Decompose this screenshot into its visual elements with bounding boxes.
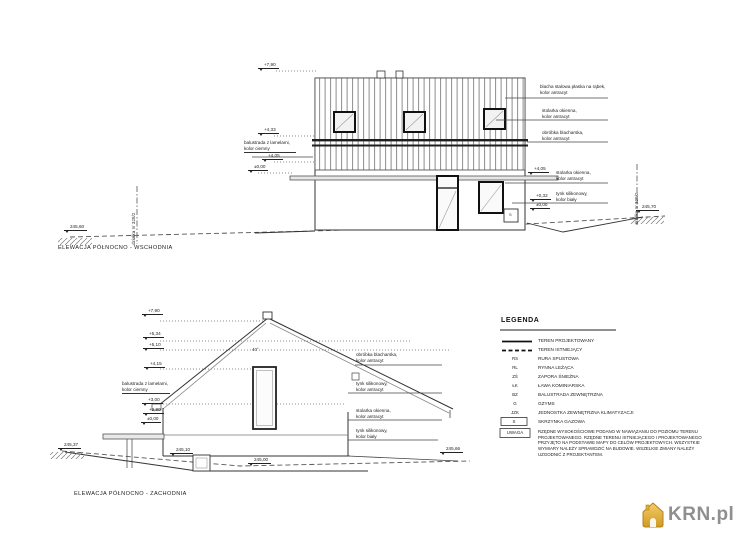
bot-ground-4: 245,66 <box>440 446 463 453</box>
legend-row-jzk: JEDNOSTKA ZEWNĘTRZNA KLIMATYZACJI <box>538 410 634 415</box>
legend-sym-rs: RS <box>502 356 528 361</box>
top-plot-label-left: działka nr 328/2 <box>131 213 136 245</box>
legend-sym-uwaga: UWAGA <box>500 430 530 435</box>
bottom-downpipe-box <box>193 455 210 471</box>
legend-sym-g: G <box>502 401 528 406</box>
top-anno-window: stolarka okienna, kolor antracyt <box>542 108 622 119</box>
bottom-elevation-caption: ELEWACJA PÓŁNOCNO - ZACHODNIA <box>74 491 187 497</box>
top-gas-box-letter: S <box>509 212 512 217</box>
bot-wall-label: balustrada z lamelami, kolor ciemny <box>122 381 170 394</box>
krn-logo-text: KRN.pl <box>668 504 734 526</box>
bot-level-1: +5,34 <box>143 331 164 338</box>
legend-sym-bz: BZ <box>502 392 528 397</box>
top-plot-label-right: działka nr 328/2 <box>634 193 639 225</box>
top-anno-roof-sheet: blacha stalowa płaska na rąbek, kolor an… <box>540 84 620 95</box>
bot-ground-2: 245,10 <box>170 447 193 454</box>
top-level-wall-right: +4,05 <box>528 166 549 173</box>
bot-level-ridge: +7,90 <box>142 308 163 315</box>
top-ground-left: 245,60 <box>64 224 87 231</box>
bot-level-3: +4,15 <box>144 361 165 368</box>
legend-sym-zs: ZŚ <box>502 374 528 379</box>
bot-anno-window: stolarka okienna, kolor antracyt <box>356 408 436 419</box>
legend-sym-jzk: JZK <box>502 410 528 415</box>
krn-house-icon <box>641 501 665 529</box>
legend-row-terrain-designed: TEREN PROJEKTOWANY <box>538 338 594 343</box>
top-door <box>437 176 458 230</box>
krn-watermark[interactable]: KRN.pl <box>641 501 734 529</box>
legend-row-lk: ŁAWA KOMINIARSKA <box>538 383 585 388</box>
top-slab <box>290 176 558 180</box>
bot-level-2: +5,10 <box>143 342 164 349</box>
bot-level-5: +2,80 <box>143 407 164 414</box>
bot-roof-pitch: 40° <box>252 347 259 352</box>
top-elevation-caption: ELEWACJA PÓŁNOCNO - WSCHODNIA <box>58 245 173 251</box>
top-level-plinth: +0,32 <box>530 193 551 200</box>
legend-row-g: GZYMS <box>538 401 555 406</box>
drawing-sheet: +7,90 +4,33 balustrada z lamelami, kolor… <box>0 0 740 547</box>
bot-level-zero: ±0,00 <box>141 416 161 423</box>
legend-note: RZĘDNE WYSOKOŚCIOWE PODANO W NAWIĄZANIU … <box>538 429 708 458</box>
legend-row-sbox: SKRZYNKA GAZOWA <box>538 419 585 424</box>
bot-anno-plaster-dark: tynk silikonowy, kolor antracyt <box>356 381 436 392</box>
bot-anno-flashing: obróbka blacharska, kolor antracyt <box>356 352 436 363</box>
top-elevation-geometry <box>58 71 665 245</box>
bot-level-4: +3,00 <box>142 397 163 404</box>
legend-row-rs: RURA SPUSTOWA <box>538 356 579 361</box>
legend-row-terrain-existing: TEREN ISTNIEJĄCY <box>538 347 582 352</box>
bot-ground-3: 245,00 <box>248 457 271 464</box>
top-level-eaves: +4,33 <box>258 127 279 134</box>
top-level-ridge: +7,90 <box>258 62 279 69</box>
top-level-zero: ±0,00 <box>248 164 268 171</box>
legend-row-rl: RYNNA LEŻĄCA <box>538 365 574 370</box>
legend-sym-sbox: S <box>501 419 527 424</box>
top-anno-flashing: obróbka blacharska, kolor antracyt <box>542 130 622 141</box>
top-ground-right: 245,70 <box>636 204 659 211</box>
bot-anno-plaster-white: tynk silikonowy, kolor biały <box>356 428 436 439</box>
bot-ground-1: 245,37 <box>58 442 81 449</box>
top-level-slab: +4,05 <box>262 153 283 160</box>
top-anno-plaster: tynk silikonowy, kolor biały <box>556 191 636 202</box>
top-wall-label: balustrada z lamelami, kolor ciemny <box>244 140 296 153</box>
legend-sym-lk: ŁK <box>502 383 528 388</box>
top-anno-window-2: stolarka okienna, kolor antracyt <box>556 170 636 181</box>
top-level-zero-right: ±0,00 <box>530 202 550 209</box>
legend-row-zs: ZAPORA ŚNIEŻNA <box>538 374 579 379</box>
legend-sym-rl: RL <box>502 365 528 370</box>
legend-row-bz: BALUSTRADA ZEWNĘTRZNA <box>538 392 603 397</box>
legend-title: LEGENDA <box>501 317 539 324</box>
drawing-linework <box>0 0 740 547</box>
